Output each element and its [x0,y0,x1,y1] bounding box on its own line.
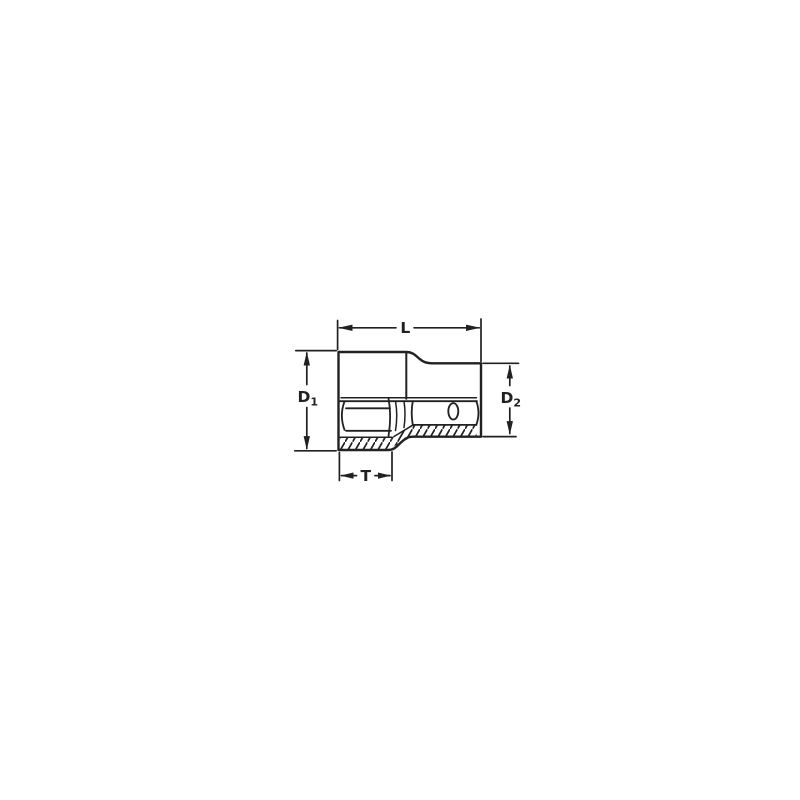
ball-detent-hole [448,403,458,419]
square-hole-left-end-curve [412,401,413,425]
d2-arrowhead-up [507,365,513,379]
square-hole-right-end-arc [476,401,478,425]
d1-arrowhead-down [304,436,310,450]
wall-contour-curve [404,401,405,427]
length-arrowhead-right [466,325,480,331]
dimension-d2: D2 [483,363,521,436]
length-arrowhead-left [338,325,352,331]
d2-label: D2 [501,389,522,410]
d1-arrowhead-up [304,352,310,366]
hex-inner-end-curve [389,398,391,436]
dimension-d1: D1 [295,351,336,451]
d1-label: D1 [298,388,319,409]
square-drive-cavity [412,401,479,425]
dimension-t: T [339,452,392,485]
dimension-length: L [338,319,481,362]
hex-inner-end-curve-2 [396,401,397,430]
d2-arrowhead-down [507,421,513,435]
socket-drawing: L D1 D2 [0,0,800,800]
t-label: T [361,467,372,485]
hatch-under-hex [340,437,392,449]
t-arrowhead-right [378,473,391,479]
t-arrowhead-left [340,473,353,479]
technical-drawing-page: L D1 D2 [0,0,800,800]
hatch-under-square-drive [413,425,477,436]
hex-opening-chamfer-arc [342,402,345,430]
length-label: L [400,319,410,337]
